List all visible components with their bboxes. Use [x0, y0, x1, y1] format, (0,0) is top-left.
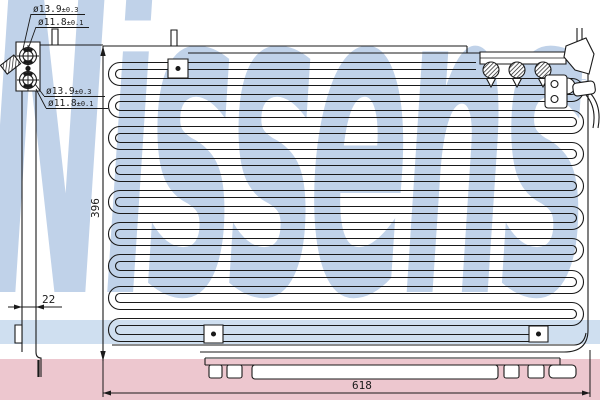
rail-center-panel: [252, 365, 498, 379]
rail-foot-1: [209, 365, 222, 378]
serpentine-inner-line: [116, 70, 584, 335]
plate-hole-top: [551, 81, 558, 88]
serpentine-outer-line: [109, 63, 577, 342]
frame-top-tab: [171, 30, 177, 46]
clamp-bottom-left-dot: [212, 332, 216, 336]
rail-foot-2: [227, 365, 242, 378]
elbow-pad: [572, 81, 596, 97]
dimension-depth: 22: [8, 293, 62, 310]
fitting-2: [509, 62, 525, 78]
port-label-bottom-outer: ø13.9±0.3: [46, 86, 91, 97]
clamp-bottom-right-dot: [537, 332, 541, 336]
rail-foot-4: [528, 365, 544, 378]
rail-bar: [205, 358, 560, 365]
dim-width-arrow-left: [103, 391, 111, 396]
port-label-top-inner: ø11.8±0.1: [38, 17, 83, 28]
line-art-drawing: 396 22 618 ø13.9±0.3 ø11.8±0.1 ø13.9±0.3…: [0, 0, 600, 400]
elbow-body: [564, 38, 594, 74]
manifold-fittings: [483, 62, 551, 87]
side-column-bracket: [15, 325, 22, 343]
port-label-top-outer: ø13.9±0.3: [33, 4, 78, 15]
dim-width-arrow-right: [582, 391, 590, 396]
condenser-technical-drawing: Nissens ®: [0, 0, 600, 400]
dim-height-arrow-top: [100, 46, 105, 56]
rail-end-piece: [549, 365, 576, 378]
mounting-bracket-plate: [545, 75, 575, 108]
bottom-mount-rail: [205, 358, 576, 379]
plate-hole-bottom: [551, 96, 558, 103]
side-view-top-pin: [52, 29, 58, 45]
dim-height-label: 396: [89, 198, 102, 218]
port-label-bottom-inner: ø11.8±0.1: [48, 98, 93, 109]
dim-depth-label: 22: [42, 293, 55, 306]
fitting-1: [483, 62, 499, 78]
serpentine-tube: [109, 63, 584, 342]
clamp-top-dot: [176, 67, 180, 71]
plate-body: [545, 75, 567, 108]
side-view: [0, 29, 103, 377]
dim-width-label: 618: [352, 379, 372, 392]
dim-height-arrow-bottom: [100, 351, 105, 361]
rail-foot-3: [504, 365, 519, 378]
dim-depth-arrow-left: [14, 305, 22, 310]
